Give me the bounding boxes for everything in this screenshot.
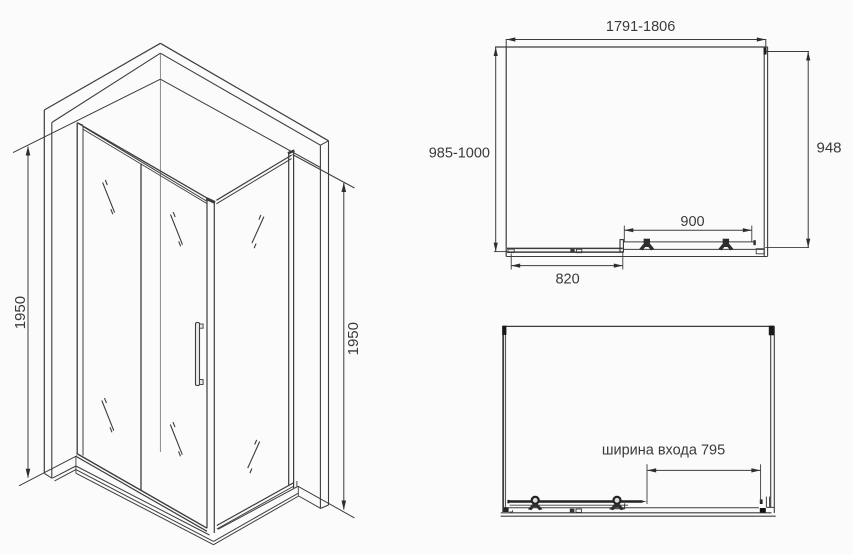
svg-text:948: 948: [817, 139, 842, 156]
svg-text:1950: 1950: [12, 296, 29, 329]
svg-text:820: 820: [555, 272, 579, 288]
svg-text:ширина входа 795: ширина входа 795: [602, 443, 725, 459]
svg-text:1791-1806: 1791-1806: [606, 19, 675, 35]
svg-text:1950: 1950: [345, 322, 362, 355]
svg-text:900: 900: [680, 214, 704, 230]
svg-text:985-1000: 985-1000: [429, 146, 490, 162]
